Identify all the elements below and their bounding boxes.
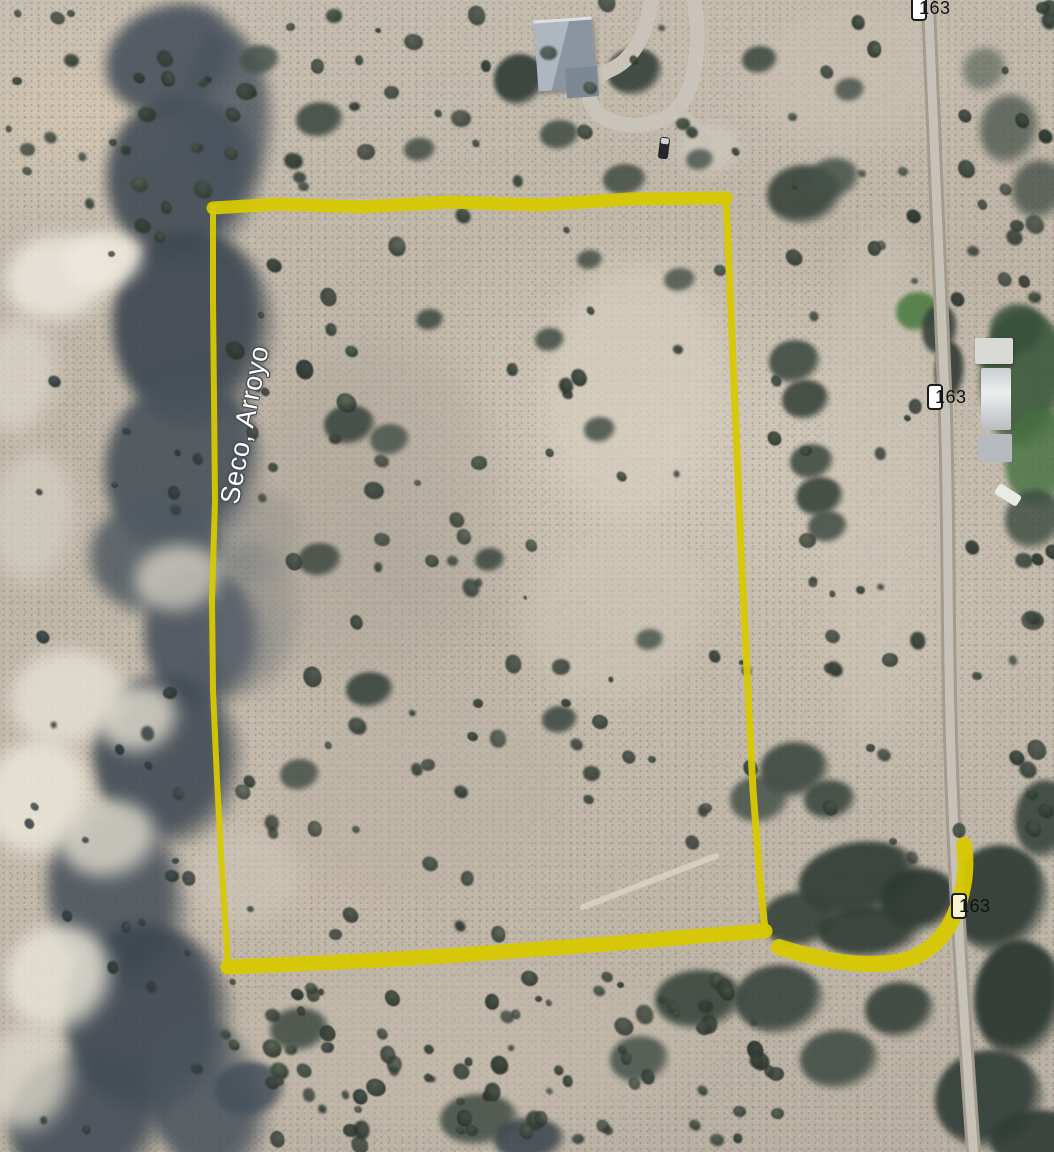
parcel-boundary-edge [213, 198, 726, 208]
access-path-line [779, 845, 965, 964]
parcel-boundary-edge [726, 198, 765, 930]
satellite-map[interactable]: Seco, Arroyo 163 163 163 [0, 0, 1054, 1152]
route-badge-163-middle: 163 [927, 384, 943, 410]
route-badge-label: 163 [959, 896, 991, 917]
route-badge-label: 163 [919, 0, 951, 19]
parcel-boundary-layer [0, 0, 1054, 1152]
route-badge-label: 163 [935, 387, 967, 408]
route-badge-163-top: 163 [911, 0, 927, 21]
parcel-boundary-edge [212, 208, 228, 967]
route-badge-163-bottom: 163 [951, 893, 967, 919]
parcel-boundary-edge [228, 931, 765, 967]
